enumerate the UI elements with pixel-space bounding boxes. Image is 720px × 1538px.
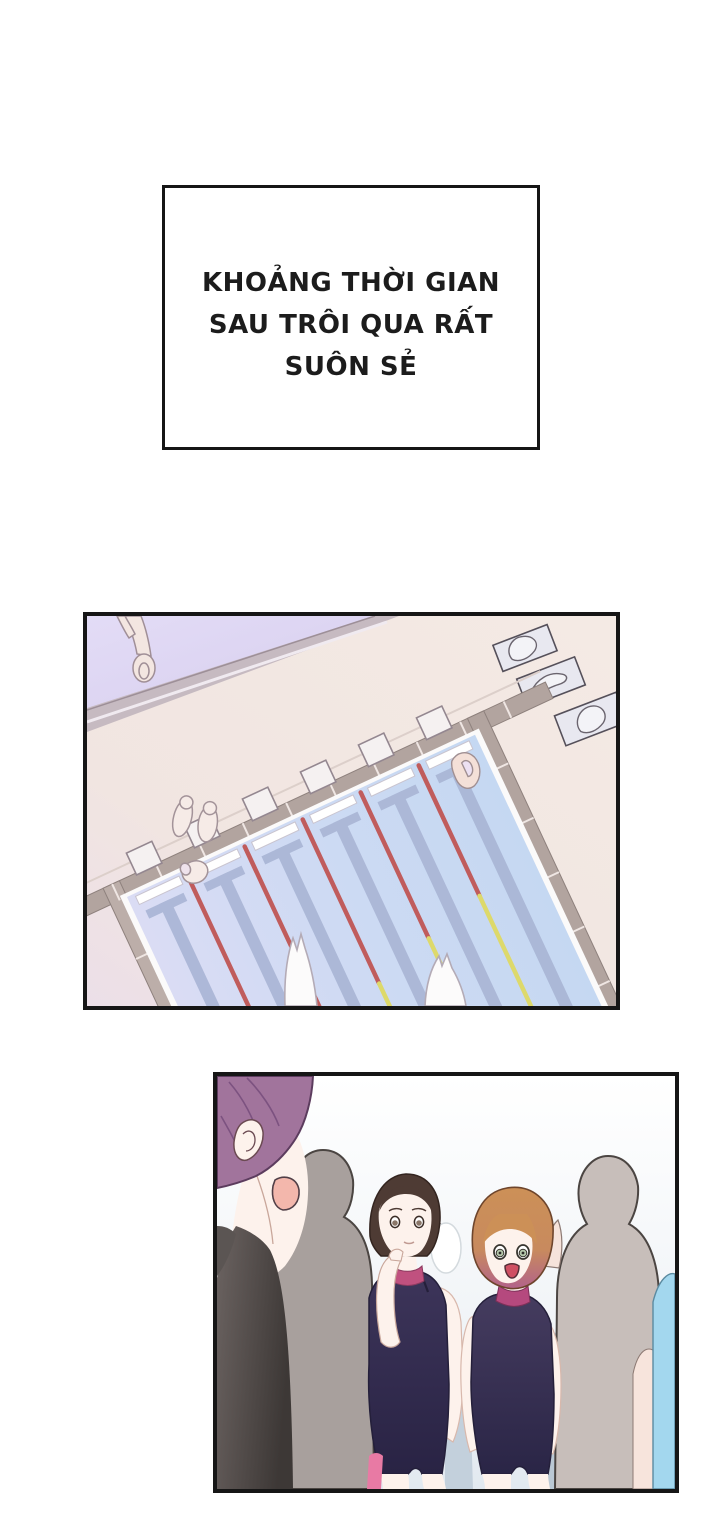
girl-bun-leg-right [422, 1474, 446, 1489]
girl-bob [461, 1187, 561, 1489]
background-leg-skin [633, 1349, 655, 1489]
crowd-panel [213, 1072, 679, 1493]
pool-illustration [87, 616, 616, 1006]
man-mouth [272, 1177, 299, 1210]
girl-bob-leg-right [528, 1474, 550, 1489]
girl-bun-pink-stripe [367, 1453, 383, 1489]
girl-bun-leg-left [380, 1474, 409, 1489]
comic-page: KHOẢNG THỜI GIAN SAU TRÔI QUA RẤT SUÔN S… [0, 0, 720, 1538]
caption-text: KHOẢNG THỜI GIAN SAU TRÔI QUA RẤT SUÔN S… [202, 248, 500, 388]
crowd-illustration [217, 1076, 675, 1489]
caption-panel: KHOẢNG THỜI GIAN SAU TRÔI QUA RẤT SUÔN S… [162, 185, 540, 450]
girl-bob-leg-left [482, 1474, 511, 1489]
girl-bob-swimsuit [471, 1294, 554, 1474]
background-swimmer-blue [653, 1274, 675, 1489]
pool-panel [83, 612, 620, 1010]
